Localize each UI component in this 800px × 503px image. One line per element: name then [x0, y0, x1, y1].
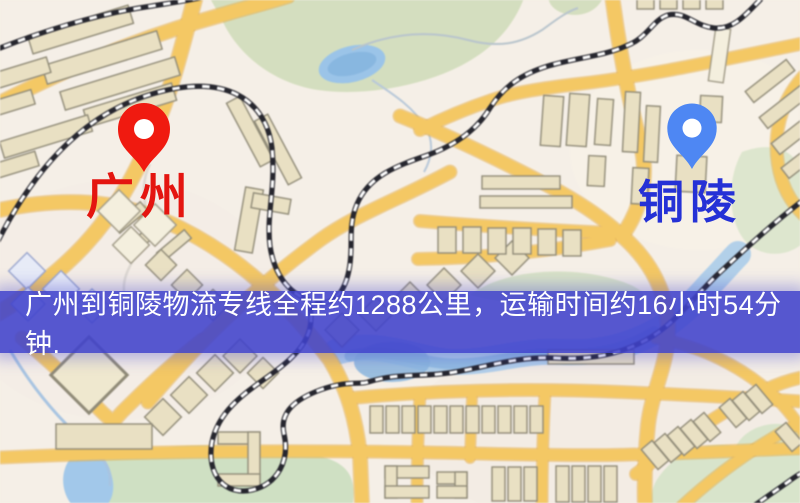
map-screenshot: 广州 铜陵 广州到铜陵物流专线全程约1288公里，运输时间约16小时54分钟. [0, 0, 800, 503]
blue-location-pin [667, 103, 716, 169]
red-location-pin [118, 103, 170, 172]
route-info-banner: 广州到铜陵物流专线全程约1288公里，运输时间约16小时54分钟. [0, 291, 800, 353]
pins-overlay [0, 0, 800, 503]
route-info-text: 广州到铜陵物流专线全程约1288公里，运输时间约16小时54分钟. [25, 283, 800, 361]
